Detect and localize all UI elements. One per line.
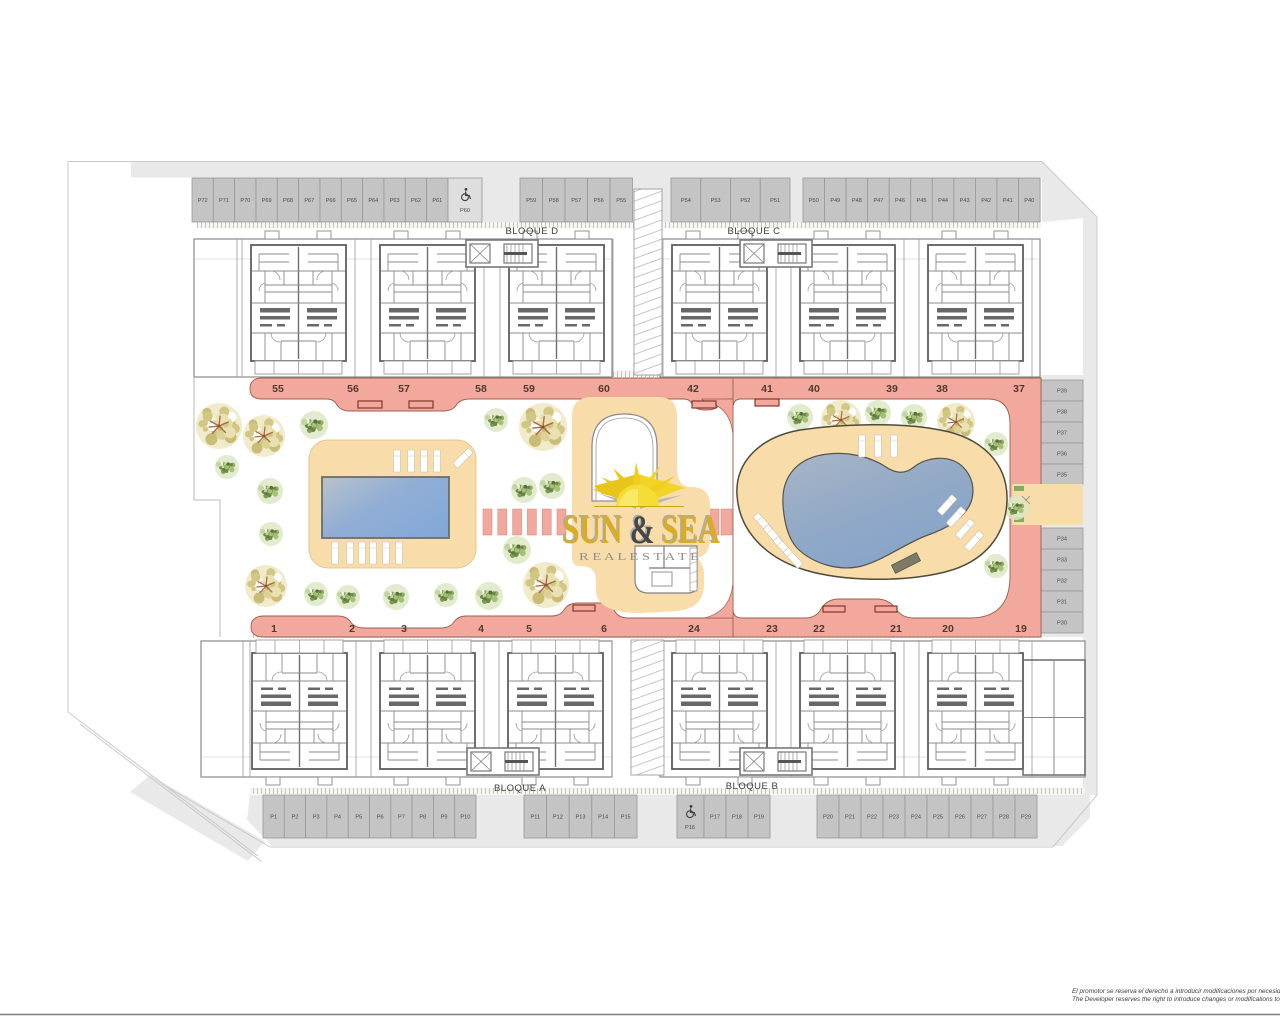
svg-text:42: 42 bbox=[687, 383, 699, 395]
svg-text:P12: P12 bbox=[553, 815, 563, 821]
svg-text:The Developer reserves the rig: The Developer reserves the right to intr… bbox=[1072, 996, 1280, 1003]
svg-text:24: 24 bbox=[688, 623, 700, 635]
svg-text:P58: P58 bbox=[549, 198, 559, 204]
svg-text:P72: P72 bbox=[198, 198, 208, 204]
svg-text:P41: P41 bbox=[1003, 198, 1013, 204]
svg-text:P40: P40 bbox=[1024, 198, 1034, 204]
svg-text:P47: P47 bbox=[873, 198, 883, 204]
svg-text:20: 20 bbox=[942, 623, 954, 635]
svg-text:P61: P61 bbox=[432, 198, 442, 204]
svg-text:P5: P5 bbox=[355, 815, 362, 821]
svg-text:P11: P11 bbox=[531, 815, 541, 821]
svg-text:23: 23 bbox=[766, 623, 778, 635]
svg-text:P35: P35 bbox=[1057, 473, 1067, 479]
svg-text:P60: P60 bbox=[460, 208, 470, 214]
svg-text:P49: P49 bbox=[830, 198, 840, 204]
svg-text:P45: P45 bbox=[917, 198, 927, 204]
svg-text:40: 40 bbox=[808, 383, 820, 395]
svg-text:P46: P46 bbox=[895, 198, 905, 204]
svg-text:P67: P67 bbox=[304, 198, 314, 204]
svg-text:R E A L E S T A T E: R E A L E S T A T E bbox=[579, 552, 699, 563]
svg-text:P30: P30 bbox=[1057, 621, 1067, 627]
svg-text:P37: P37 bbox=[1057, 431, 1067, 437]
svg-text:P17: P17 bbox=[710, 815, 720, 821]
svg-text:P36: P36 bbox=[1057, 452, 1067, 458]
svg-text:P29: P29 bbox=[1021, 815, 1031, 821]
svg-text:P31: P31 bbox=[1057, 600, 1067, 606]
svg-text:P14: P14 bbox=[598, 815, 608, 821]
svg-text:P13: P13 bbox=[576, 815, 586, 821]
svg-text:P24: P24 bbox=[911, 815, 921, 821]
svg-text:19: 19 bbox=[1015, 623, 1027, 635]
svg-text:P42: P42 bbox=[981, 198, 991, 204]
svg-text:22: 22 bbox=[813, 623, 825, 635]
svg-text:P52: P52 bbox=[740, 198, 750, 204]
svg-text:P69: P69 bbox=[262, 198, 272, 204]
svg-text:P4: P4 bbox=[334, 815, 341, 821]
svg-text:P3: P3 bbox=[313, 815, 320, 821]
svg-text:BLOQUE B: BLOQUE B bbox=[726, 781, 779, 792]
svg-text:P63: P63 bbox=[390, 198, 400, 204]
svg-text:P7: P7 bbox=[398, 815, 405, 821]
svg-text:4: 4 bbox=[478, 623, 484, 635]
svg-text:P15: P15 bbox=[621, 815, 631, 821]
svg-text:41: 41 bbox=[761, 383, 773, 395]
svg-text:P55: P55 bbox=[616, 198, 626, 204]
svg-text:P48: P48 bbox=[852, 198, 862, 204]
svg-text:1: 1 bbox=[271, 623, 277, 635]
svg-text:3: 3 bbox=[401, 623, 407, 635]
svg-text:56: 56 bbox=[347, 383, 359, 395]
svg-text:P1: P1 bbox=[270, 815, 277, 821]
svg-text:BLOQUE A: BLOQUE A bbox=[494, 783, 546, 794]
svg-text:P70: P70 bbox=[240, 198, 250, 204]
svg-text:P22: P22 bbox=[867, 815, 877, 821]
svg-text:P51: P51 bbox=[770, 198, 780, 204]
svg-text:P6: P6 bbox=[377, 815, 384, 821]
svg-text:SUN & SEA: SUN & SEA bbox=[563, 507, 720, 552]
svg-text:P54: P54 bbox=[681, 198, 691, 204]
svg-text:P53: P53 bbox=[711, 198, 721, 204]
svg-text:P57: P57 bbox=[571, 198, 581, 204]
svg-text:39: 39 bbox=[886, 383, 898, 395]
svg-text:P59: P59 bbox=[526, 198, 536, 204]
svg-text:5: 5 bbox=[526, 623, 532, 635]
svg-text:P56: P56 bbox=[594, 198, 604, 204]
svg-text:P64: P64 bbox=[368, 198, 378, 204]
svg-text:P39: P39 bbox=[1057, 389, 1067, 395]
svg-text:59: 59 bbox=[523, 383, 535, 395]
svg-text:P9: P9 bbox=[441, 815, 448, 821]
svg-text:P23: P23 bbox=[889, 815, 899, 821]
svg-text:P26: P26 bbox=[955, 815, 965, 821]
svg-text:P10: P10 bbox=[460, 815, 470, 821]
svg-text:P18: P18 bbox=[732, 815, 742, 821]
svg-text:BLOQUE C: BLOQUE C bbox=[727, 226, 780, 237]
svg-text:P43: P43 bbox=[960, 198, 970, 204]
svg-text:6: 6 bbox=[601, 623, 607, 635]
svg-text:60: 60 bbox=[598, 383, 610, 395]
svg-text:37: 37 bbox=[1013, 383, 1025, 395]
svg-text:P44: P44 bbox=[938, 198, 948, 204]
svg-text:38: 38 bbox=[936, 383, 948, 395]
svg-text:P66: P66 bbox=[326, 198, 336, 204]
svg-text:P2: P2 bbox=[292, 815, 299, 821]
svg-text:P25: P25 bbox=[933, 815, 943, 821]
svg-text:2: 2 bbox=[349, 623, 355, 635]
svg-text:P38: P38 bbox=[1057, 410, 1067, 416]
svg-text:P21: P21 bbox=[845, 815, 855, 821]
svg-text:P33: P33 bbox=[1057, 558, 1067, 564]
svg-text:P19: P19 bbox=[754, 815, 764, 821]
svg-text:P62: P62 bbox=[411, 198, 421, 204]
svg-text:P34: P34 bbox=[1057, 537, 1067, 543]
svg-text:P28: P28 bbox=[999, 815, 1009, 821]
svg-text:55: 55 bbox=[272, 383, 284, 395]
svg-text:P27: P27 bbox=[977, 815, 987, 821]
svg-text:P50: P50 bbox=[809, 198, 819, 204]
svg-text:P65: P65 bbox=[347, 198, 357, 204]
svg-text:P71: P71 bbox=[219, 198, 229, 204]
svg-text:P20: P20 bbox=[823, 815, 833, 821]
svg-text:El promotor se reserva el dere: El promotor se reserva el derecho a intr… bbox=[1072, 988, 1280, 995]
svg-text:P8: P8 bbox=[419, 815, 426, 821]
svg-text:21: 21 bbox=[890, 623, 902, 635]
svg-text:P32: P32 bbox=[1057, 579, 1067, 585]
svg-text:BLOQUE D: BLOQUE D bbox=[505, 226, 558, 237]
svg-text:P68: P68 bbox=[283, 198, 293, 204]
svg-text:P16: P16 bbox=[685, 825, 695, 831]
svg-text:58: 58 bbox=[475, 383, 487, 395]
svg-text:57: 57 bbox=[398, 383, 410, 395]
